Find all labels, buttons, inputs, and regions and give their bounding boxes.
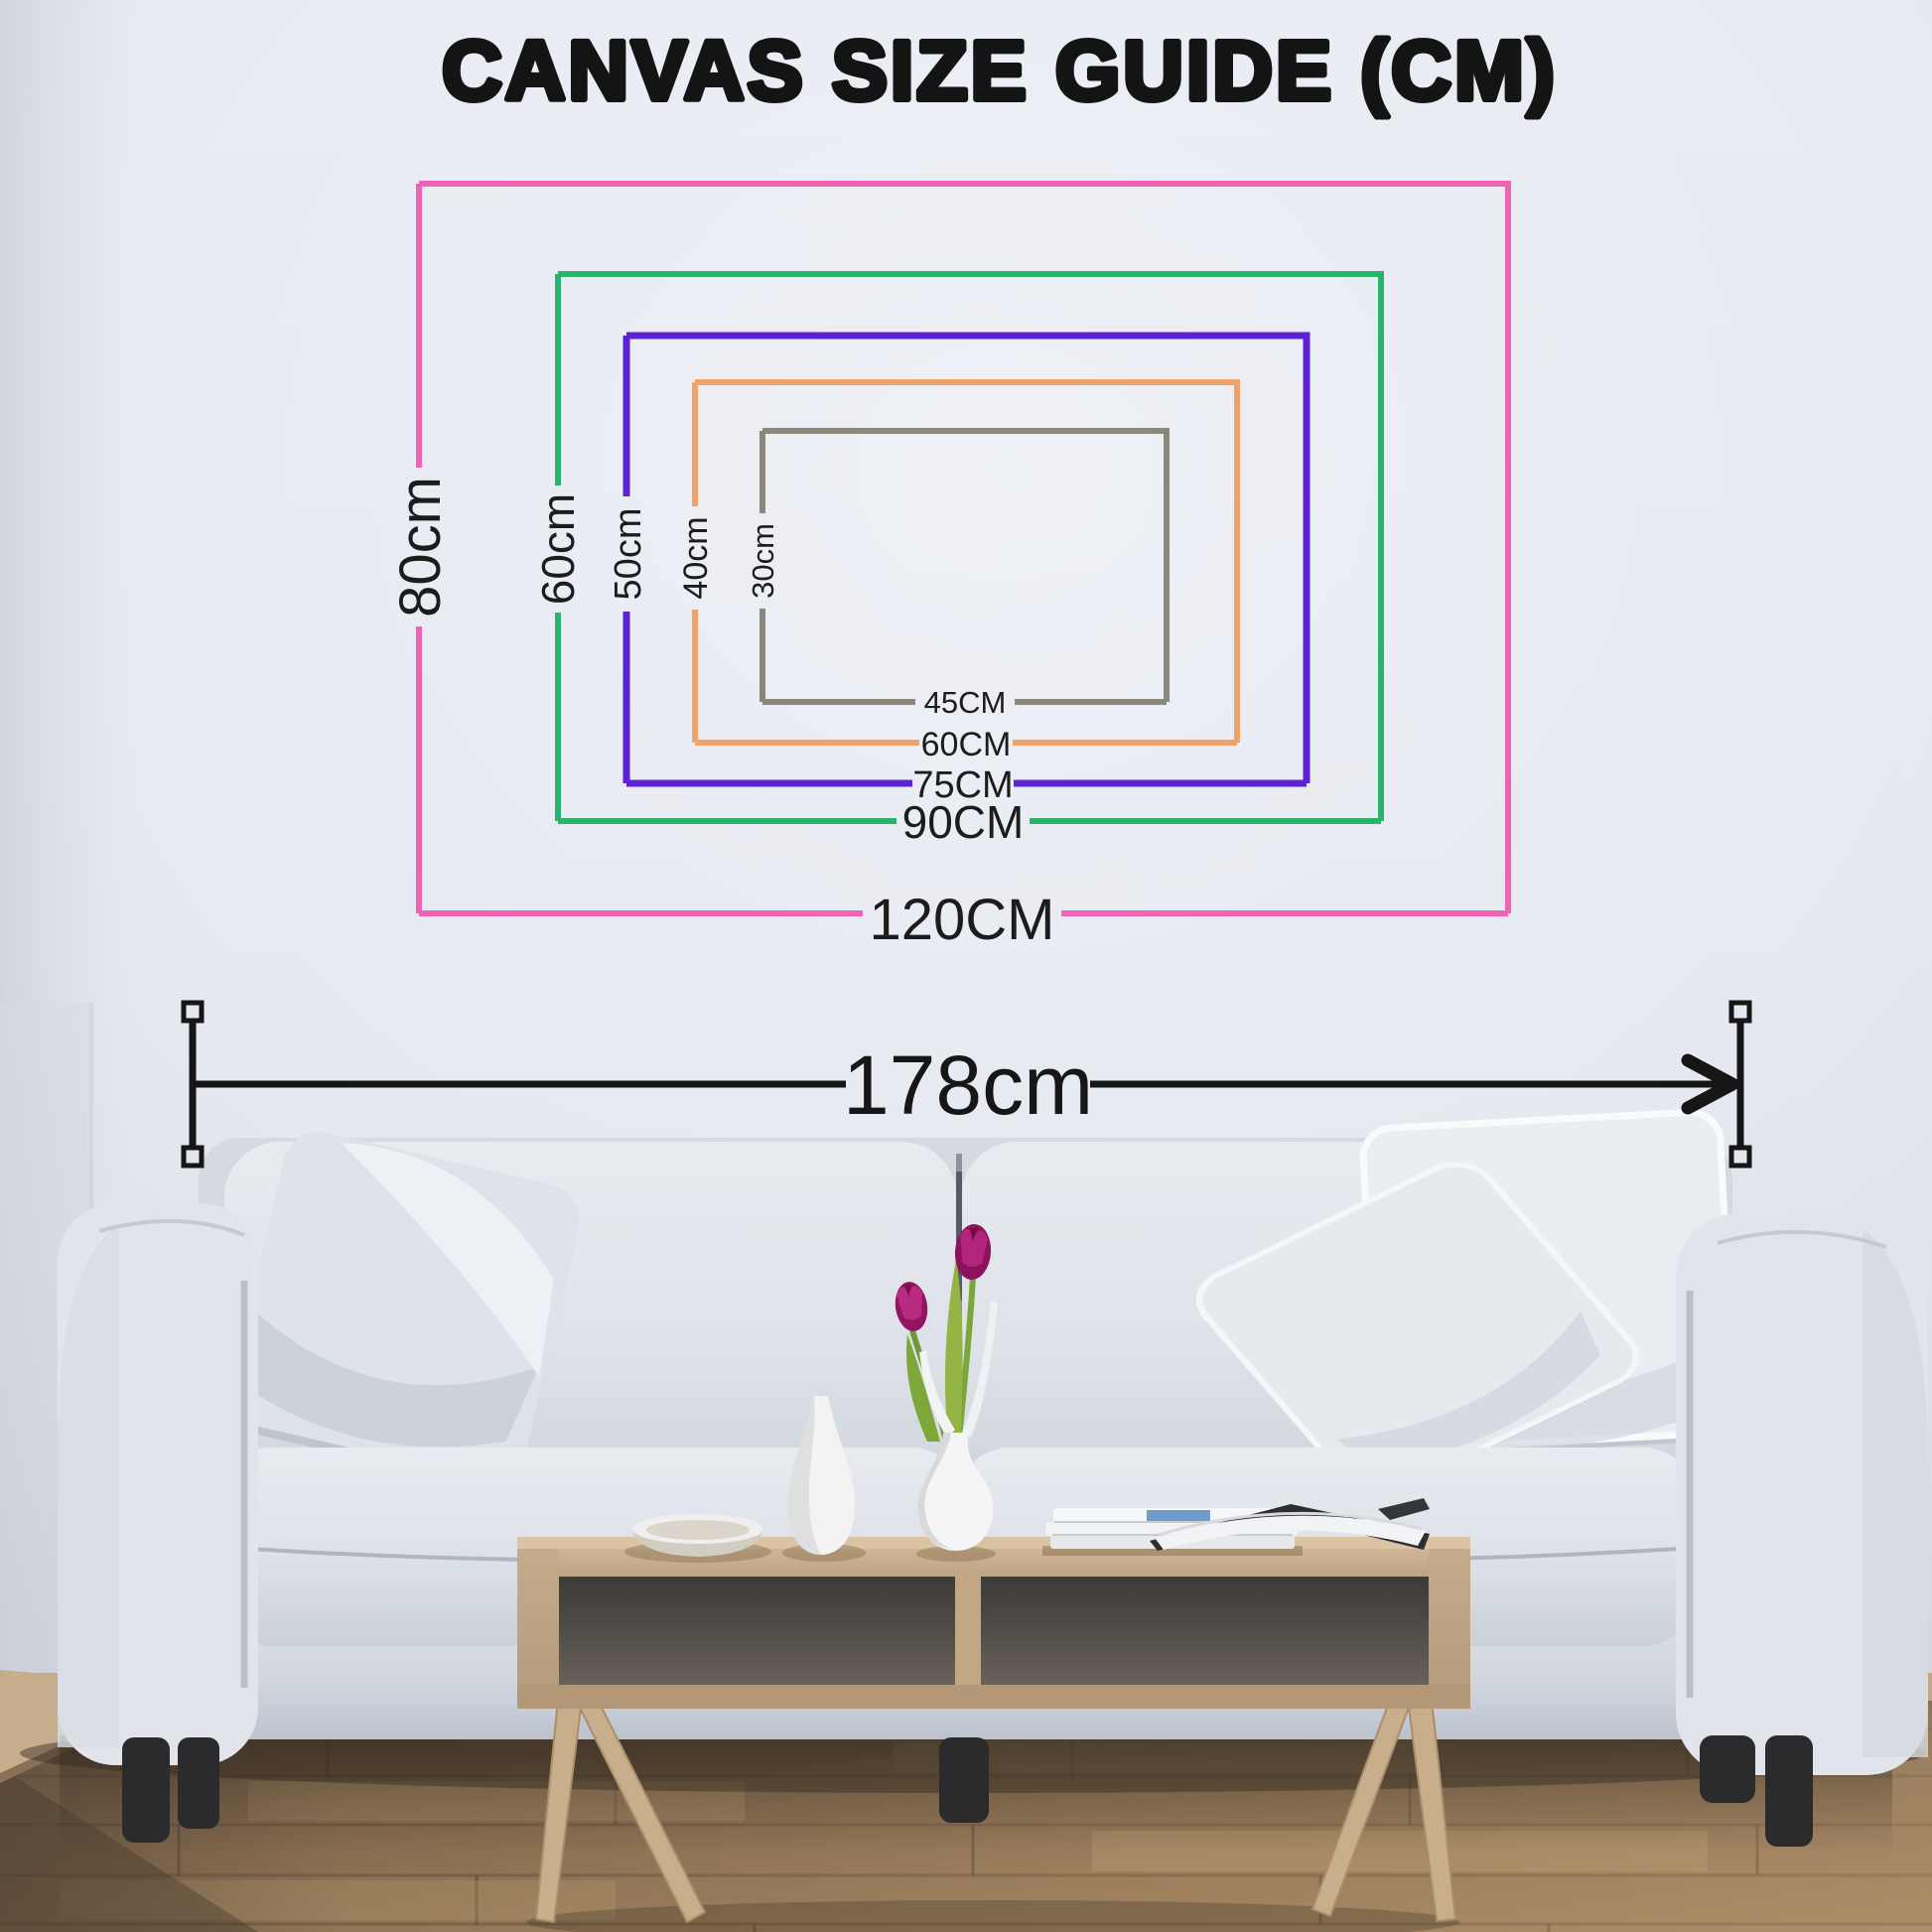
svg-text:75CM: 75CM [912,764,1013,806]
svg-text:CANVAS SIZE GUIDE (CM): CANVAS SIZE GUIDE (CM) [442,24,1558,117]
svg-text:40cm: 40cm [677,516,715,599]
svg-text:120CM: 120CM [870,888,1055,952]
svg-text:50cm: 50cm [608,508,649,601]
svg-text:60cm: 60cm [532,493,584,605]
svg-text:80cm: 80cm [388,477,453,618]
svg-text:30cm: 30cm [746,523,780,599]
svg-text:60CM: 60CM [921,726,1012,763]
svg-text:178cm: 178cm [843,1038,1093,1132]
svg-text:45CM: 45CM [924,685,1007,720]
